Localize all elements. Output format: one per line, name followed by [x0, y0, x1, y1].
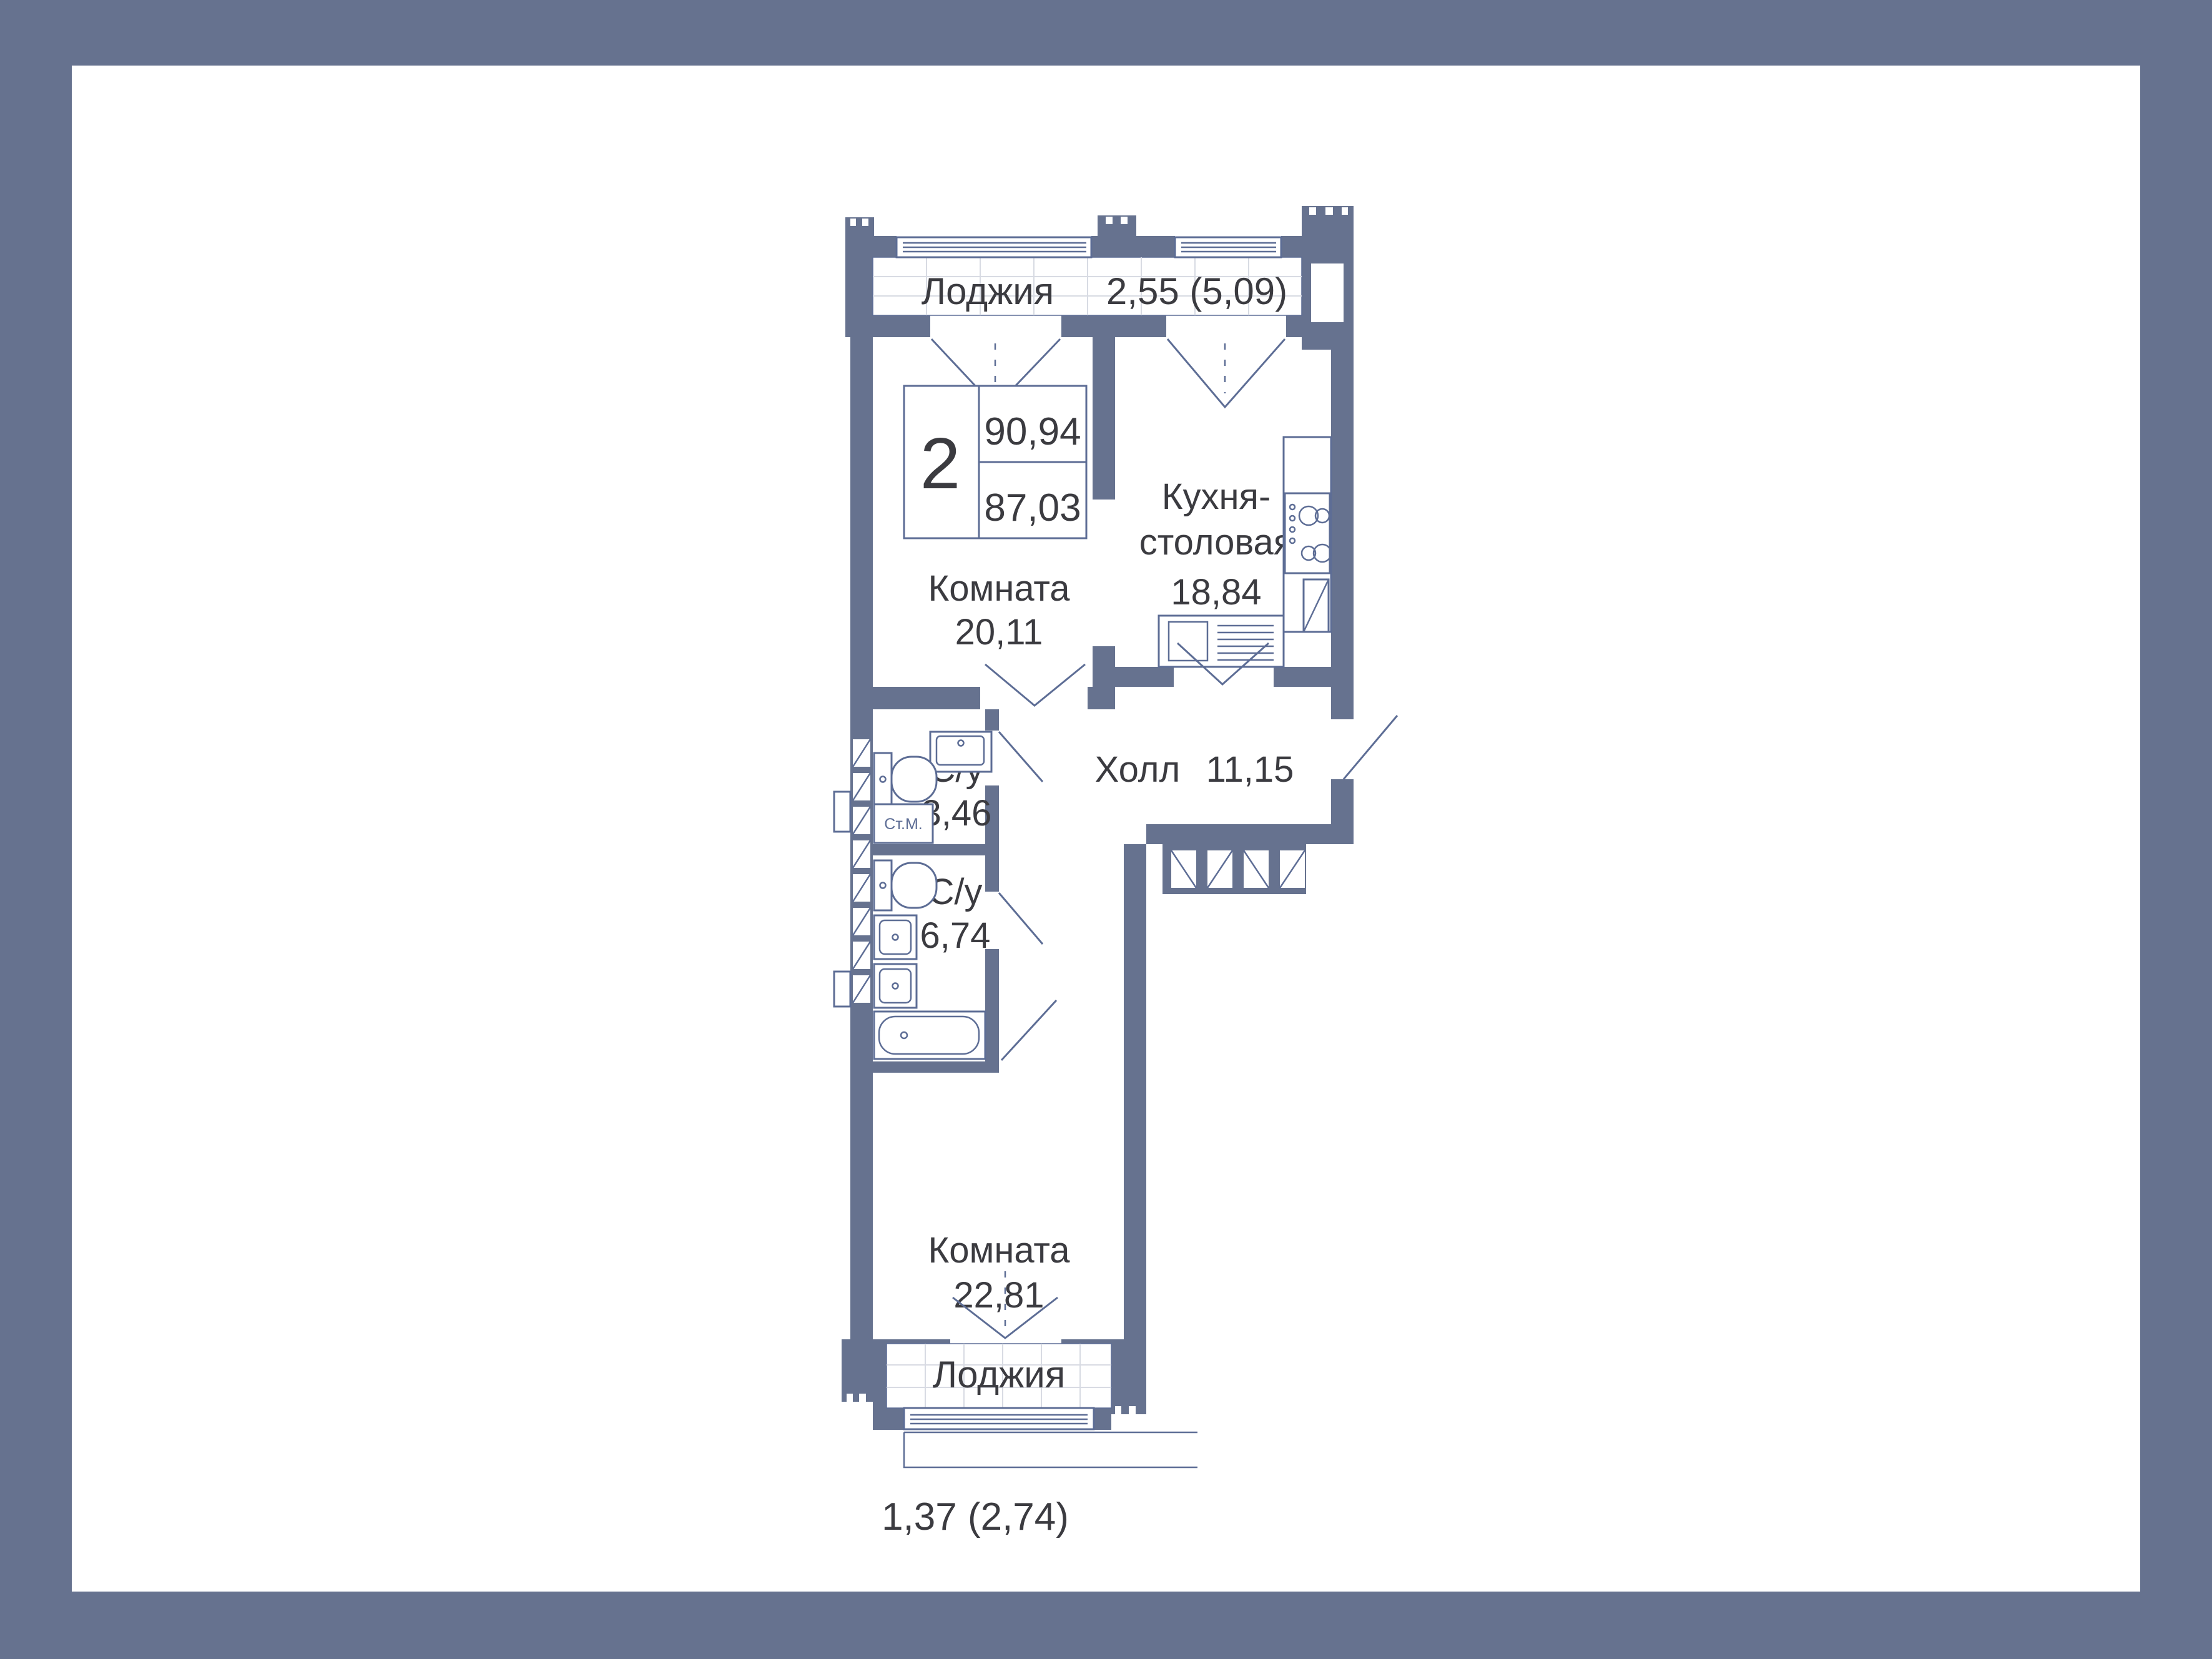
- room-top-area: 20,11: [955, 612, 1043, 652]
- sink-icon-bath2-a: [874, 915, 917, 959]
- loggia-top-label: Лоджия: [922, 270, 1054, 312]
- kitchen-area: 18,84: [1171, 572, 1261, 613]
- info-area-total: 90,94: [984, 410, 1081, 453]
- loggia-top-area: 2,55 (5,09): [1106, 270, 1287, 312]
- toilet-icon-bath1: [874, 753, 936, 805]
- toilet-icon-bath2: [874, 860, 936, 910]
- apartment-info-box: 2 90,94 87,03: [904, 386, 1086, 538]
- window-bottom: [904, 1408, 1094, 1429]
- room-bottom-label: Комната: [928, 1230, 1070, 1271]
- info-area-living: 87,03: [984, 486, 1081, 529]
- window-top-right: [1175, 237, 1281, 257]
- washing-machine-label: Ст.М.: [884, 815, 922, 833]
- stove-icon: [1285, 493, 1331, 573]
- info-room-count: 2: [920, 423, 961, 504]
- kitchen-label-2: столовая: [1139, 522, 1293, 563]
- loggia-top: Лоджия 2,55 (5,09): [873, 237, 1302, 315]
- vent-shaft-icon: [1304, 579, 1329, 632]
- hall-label: Холл: [1095, 749, 1181, 790]
- hall-area: 11,15: [1206, 749, 1294, 790]
- floor-plan-canvas: Лоджия 2,55 (5,09) 2 90,94 87,03: [0, 0, 2212, 1659]
- sink-icon-bath1: [930, 732, 991, 772]
- washing-machine-icon: Ст.М.: [874, 804, 933, 843]
- window-top-left: [897, 237, 1091, 257]
- loggia-bottom-label: Лоджия: [933, 1354, 1066, 1396]
- kitchen-label-1: Кухня-: [1162, 476, 1271, 517]
- loggia-bottom-area: 1,37 (2,74): [882, 1495, 1069, 1538]
- bathtub-icon: [874, 1012, 985, 1059]
- bathroom-large-area: 6,74: [920, 915, 991, 956]
- floor-plan-page: Лоджия 2,55 (5,09) 2 90,94 87,03: [0, 0, 2212, 1659]
- sink-icon-bath2-b: [874, 964, 917, 1008]
- kitchen-appliance-icon: [1159, 616, 1284, 667]
- room-top-label: Комната: [928, 568, 1070, 609]
